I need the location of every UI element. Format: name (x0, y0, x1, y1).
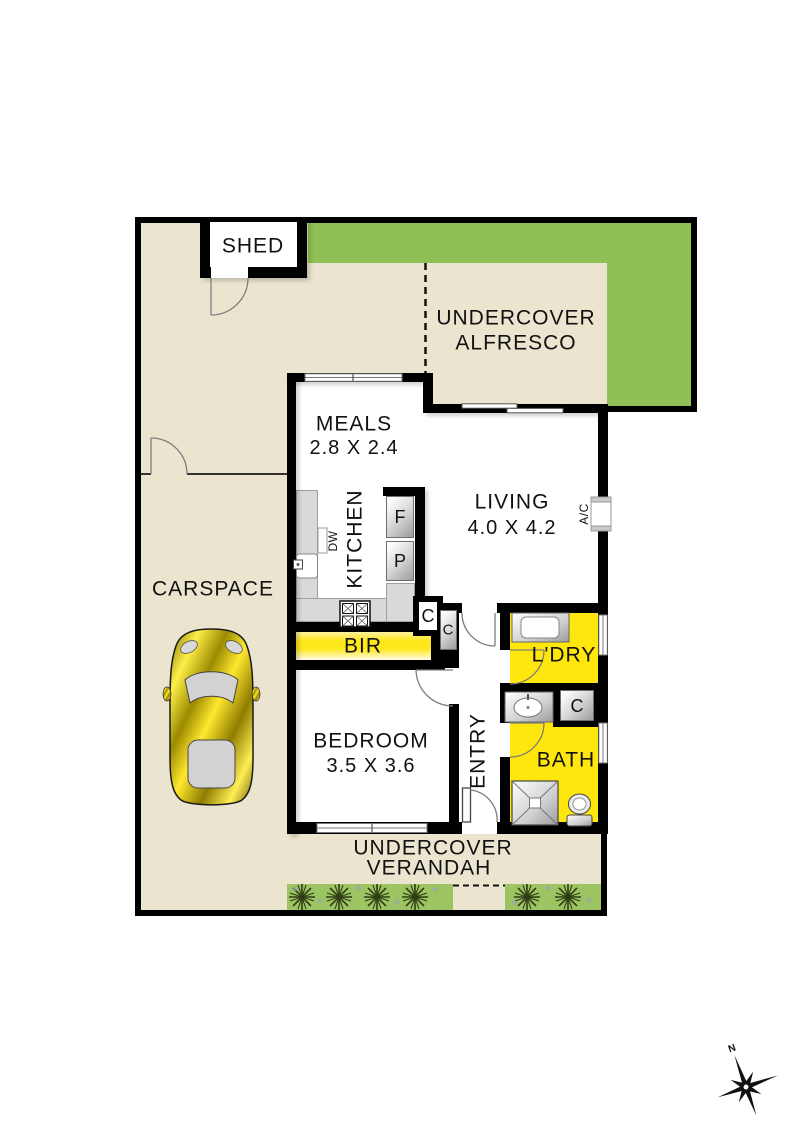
floor-plan: N SHED UNDERCOVER ALFRESCO MEALS 2.8 X 2… (0, 0, 800, 1132)
bath-label: BATH (537, 750, 595, 771)
air-conditioner-label: A/C (578, 503, 590, 525)
gate-door (151, 438, 187, 474)
cupboard3-label: C (571, 697, 584, 715)
bedroom-dims-label: 3.5 X 3.6 (326, 756, 415, 776)
shower-icon (512, 781, 558, 825)
window-bath (599, 723, 608, 763)
living-dims-label: 4.0 X 4.2 (467, 518, 556, 538)
living-label: LIVING (475, 492, 550, 513)
sliding-door (462, 404, 563, 413)
bedroom-door (416, 670, 453, 706)
window-meals (305, 374, 402, 382)
compass-icon: N (702, 1032, 788, 1125)
kitchen-sink-icon (294, 554, 318, 578)
bir-label: BIR (344, 636, 382, 657)
alfresco-label-line2: ALFRESCO (455, 333, 576, 354)
stove-icon (340, 601, 370, 627)
fridge-label: F (395, 508, 406, 526)
bedroom-label: BEDROOM (313, 731, 429, 752)
compass-north-label: N (727, 1043, 738, 1056)
meals-dims-label: 2.8 X 2.4 (309, 438, 398, 458)
window-laundry (599, 615, 608, 655)
air-conditioner-icon (591, 497, 611, 531)
car-icon (163, 629, 260, 805)
kitchen-label: KITCHEN (345, 489, 366, 588)
cupboard1-label: C (422, 607, 435, 625)
verandah-label-line2: VERANDAH (367, 858, 492, 879)
laundry-label: L'DRY (532, 645, 597, 666)
entry-label: ENTRY (468, 713, 489, 789)
front-door (463, 788, 498, 822)
dishwasher-label: DW (327, 531, 339, 552)
window-bedroom (317, 824, 427, 833)
meals-label: MEALS (316, 414, 392, 435)
laundry-trough-icon (512, 613, 569, 642)
toilet-icon (567, 794, 592, 826)
garden-plants (289, 884, 592, 910)
verandah-label-line1: UNDERCOVER (353, 838, 512, 859)
vanity-basin-icon (505, 692, 553, 722)
shed-door (211, 278, 248, 315)
living-entry-door (462, 613, 495, 646)
pantry-label: P (394, 552, 406, 570)
carspace-label: CARSPACE (152, 579, 274, 600)
alfresco-label-line1: UNDERCOVER (436, 308, 595, 329)
shed-label: SHED (222, 236, 284, 257)
cupboard2-label: C (443, 623, 454, 638)
